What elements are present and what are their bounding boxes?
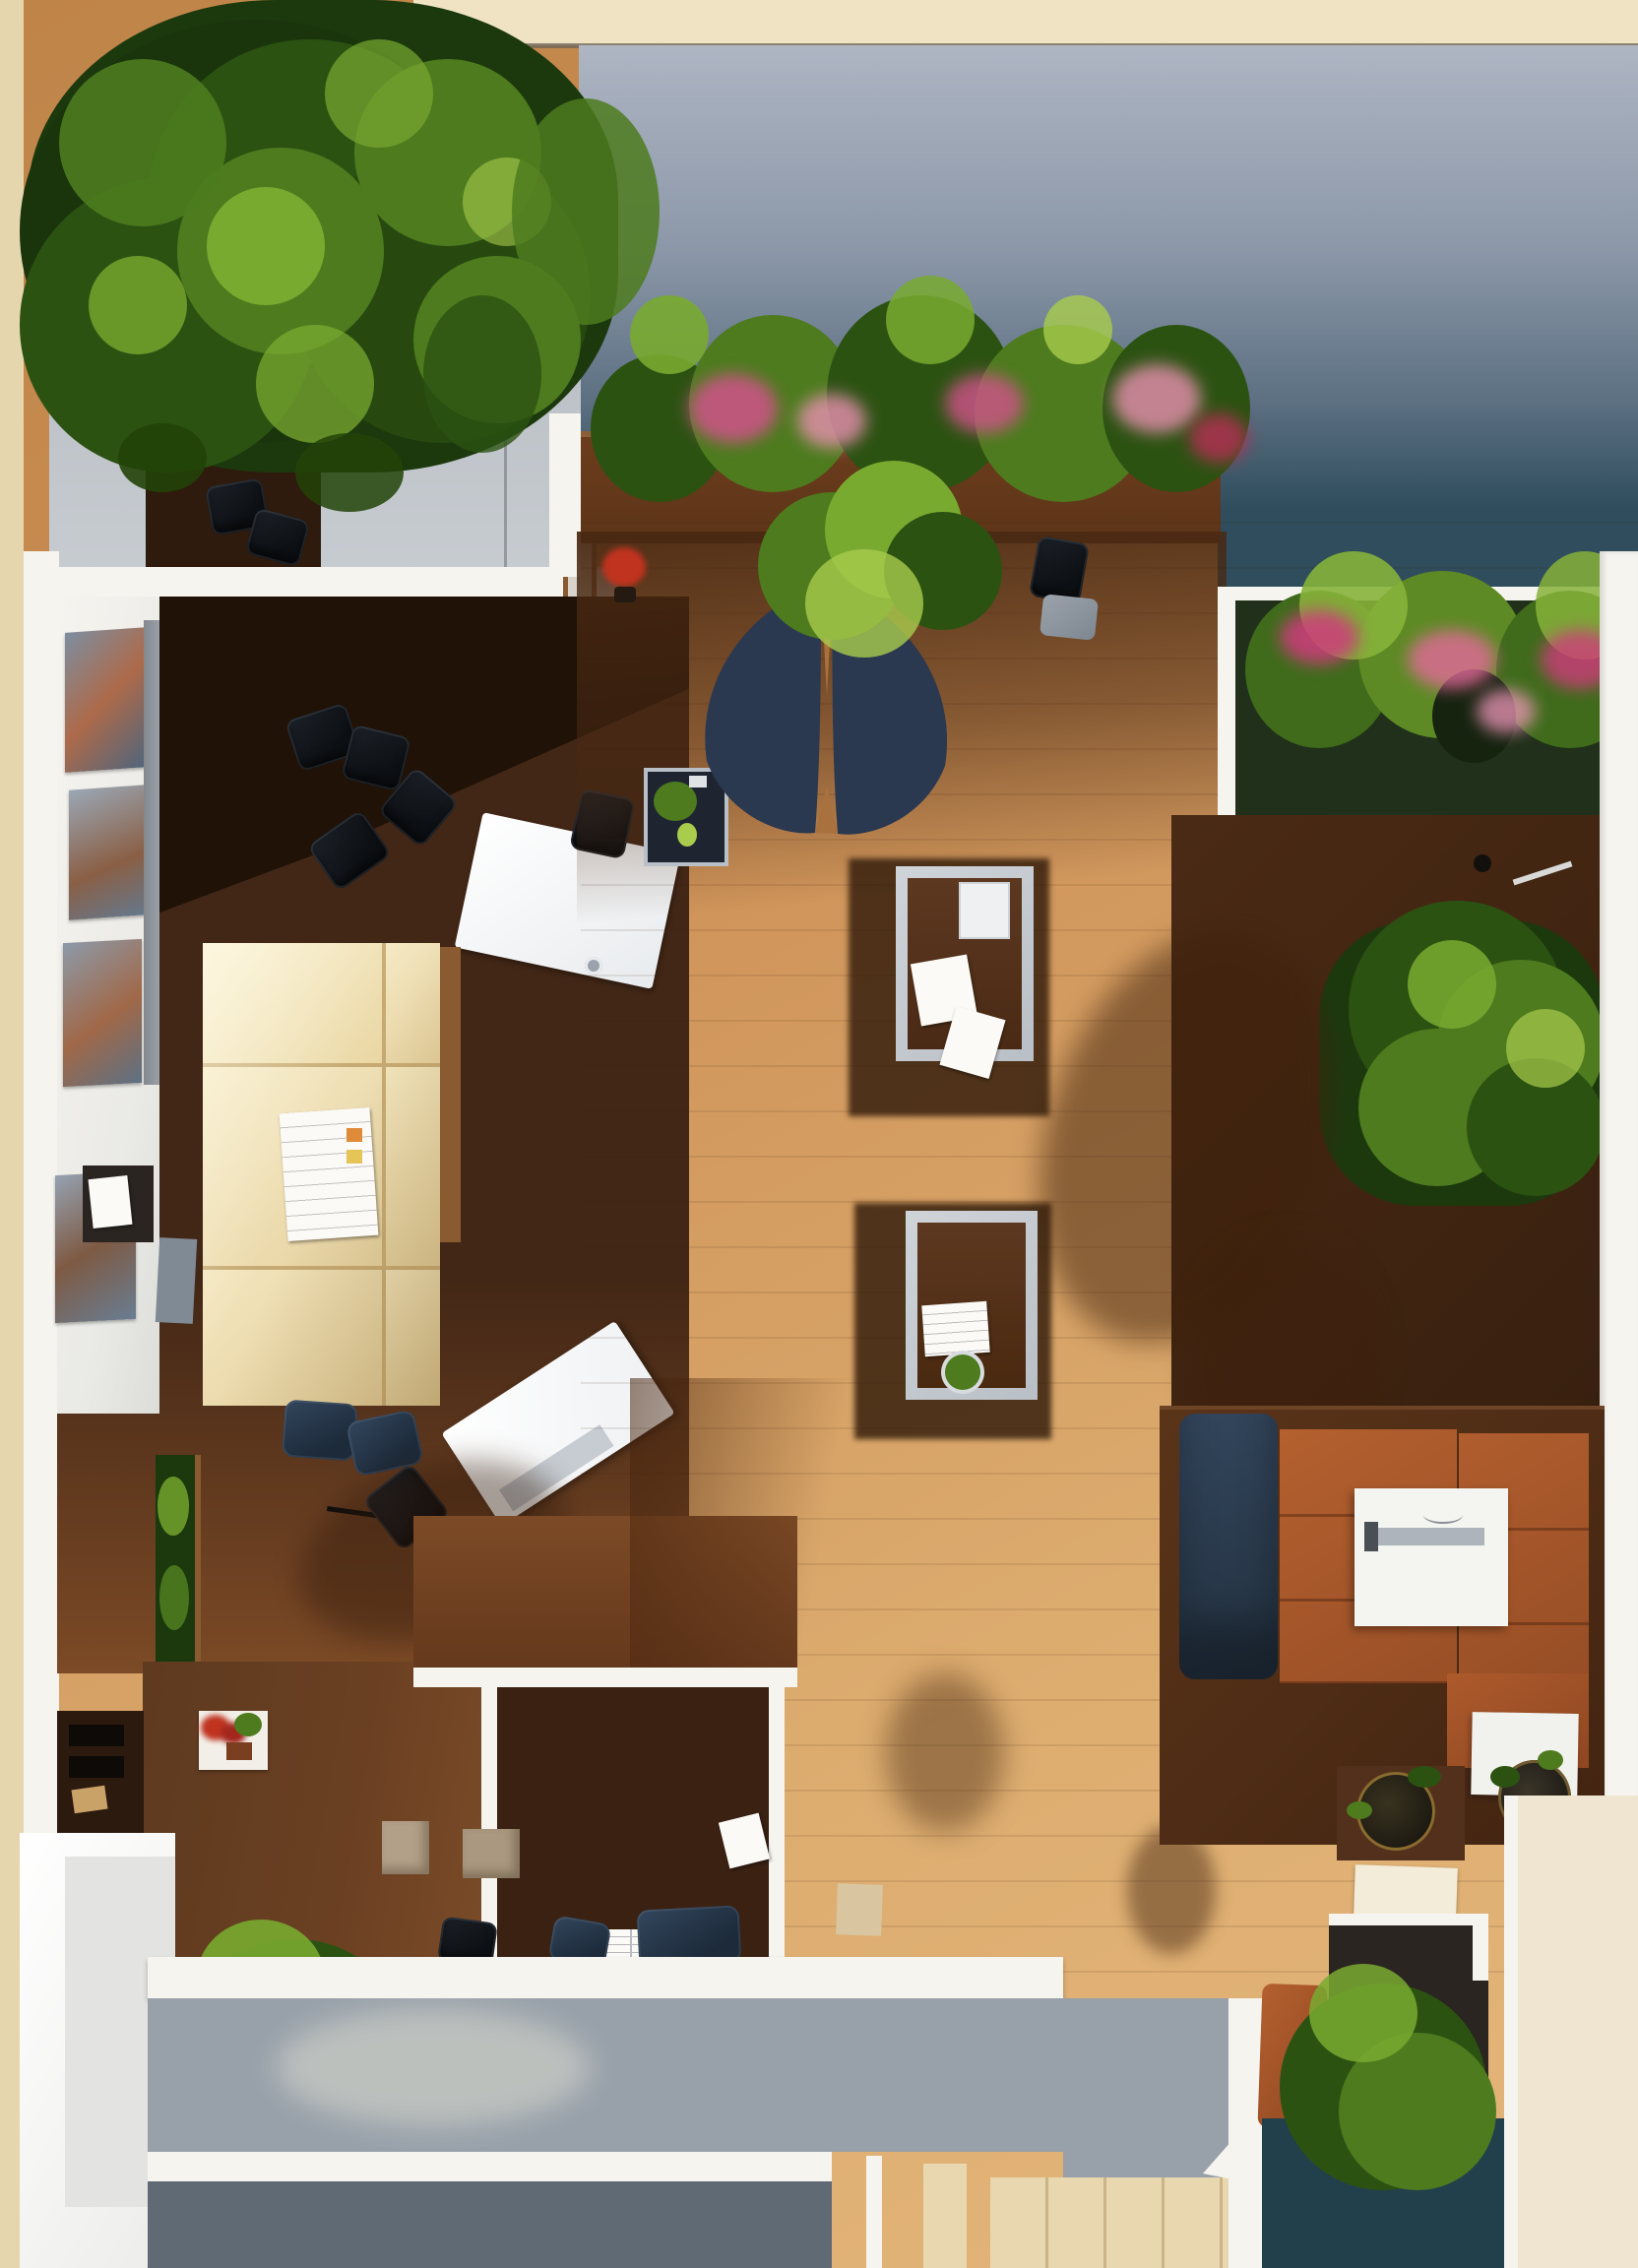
bar-dark-deck xyxy=(148,2181,832,2268)
flower-box xyxy=(199,1711,268,1770)
planter-flowers-magenta xyxy=(1408,630,1496,689)
shelving-unit xyxy=(57,1711,144,1837)
left-white-wall xyxy=(24,551,59,1979)
br-cream-box xyxy=(1354,1864,1458,1918)
hedge-flowers-pink xyxy=(797,394,866,448)
hedge-foliage-bright xyxy=(1043,295,1112,364)
tree-foliage-bright xyxy=(1408,940,1496,1029)
basket-leaf xyxy=(1347,1801,1372,1819)
beige-cabinet-front xyxy=(990,2177,1228,2268)
canopy-wisp xyxy=(118,423,207,492)
basket-leaf xyxy=(1538,1750,1563,1770)
flower-pot xyxy=(226,1742,252,1760)
hedge-flowers-pink xyxy=(689,374,778,443)
office-wall-right xyxy=(769,1683,785,1969)
table-white-box xyxy=(959,882,1010,939)
bar-gray-deck-right xyxy=(1063,1998,1228,2195)
flower-green xyxy=(234,1713,262,1736)
canopy-foliage-bright xyxy=(207,187,325,305)
basket-leaf xyxy=(1408,1766,1441,1788)
wall-art-frame xyxy=(65,627,148,773)
table-plant xyxy=(945,1354,980,1390)
hedge-flowers-crimson xyxy=(1189,413,1248,463)
planter-flowers-magenta xyxy=(1280,610,1358,664)
floor-shade-blend xyxy=(630,1378,945,1673)
bar-white-mid-band xyxy=(148,2152,832,2181)
sofa-document xyxy=(280,1107,379,1241)
navy-sofa-cushion xyxy=(1179,1414,1278,1679)
canopy-foliage-bright xyxy=(256,325,374,443)
white-divider xyxy=(866,2156,882,2268)
table-shelf xyxy=(1364,1528,1484,1545)
left-outer-wall-top xyxy=(28,567,618,600)
table-sketch xyxy=(1423,1506,1463,1524)
office-chair xyxy=(1029,535,1090,604)
taupe-stool xyxy=(382,1821,429,1874)
bar-white-top-band xyxy=(148,1957,1063,1998)
gray-step xyxy=(156,1237,197,1324)
tree-shadow xyxy=(1127,1826,1216,1954)
sticky-note-orange xyxy=(346,1128,362,1142)
shelf-slot xyxy=(69,1756,124,1778)
canopy-foliage xyxy=(59,59,226,226)
right-potted-tree xyxy=(1319,901,1614,1216)
taupe-stool xyxy=(463,1829,520,1878)
ceiling-lamp-dot xyxy=(1474,854,1491,872)
sticky-note-yellow xyxy=(346,1150,362,1164)
aerial-interior-rendering xyxy=(0,0,1638,2268)
tree-foliage-bright xyxy=(1506,1009,1585,1088)
right-white-wall xyxy=(1600,551,1638,1801)
hedge-flowers-pink xyxy=(945,374,1024,433)
canopy-wisp xyxy=(512,98,660,325)
large-tree-canopy xyxy=(0,0,669,532)
canopy-foliage-bright xyxy=(325,39,433,148)
red-flower-pot-bloom xyxy=(602,547,646,587)
shrub-foliage-bright xyxy=(1309,1964,1417,2062)
beige-panel xyxy=(923,2164,967,2268)
canopy-wisp xyxy=(423,295,541,453)
canopy-foliage-bright xyxy=(89,256,187,354)
wall-art-frame xyxy=(63,939,142,1087)
coffee-table-lower xyxy=(906,1211,1038,1400)
white-square-table xyxy=(1354,1488,1508,1626)
wall-art-frame xyxy=(69,785,146,919)
planter-foliage xyxy=(159,1565,189,1630)
shelf-slot xyxy=(69,1725,124,1746)
hedge-foliage-bright xyxy=(886,276,975,364)
canopy-wisp xyxy=(295,433,404,512)
shelf-item xyxy=(71,1786,107,1813)
tree-shadow xyxy=(886,1673,1004,1831)
cabinet-paper xyxy=(88,1175,132,1228)
gray-ottoman xyxy=(1039,594,1099,641)
deck-sheen xyxy=(276,2008,591,2126)
coffee-table-upper xyxy=(896,866,1034,1061)
red-flower-pot xyxy=(614,587,636,602)
basket-leaf xyxy=(1490,1766,1520,1788)
hedge-flowers-pink xyxy=(1112,364,1201,433)
wire-basket-plant xyxy=(1356,1772,1435,1851)
bottom-right-cream-wall xyxy=(1504,1795,1638,2268)
table-slot xyxy=(1364,1522,1378,1551)
planter-foliage xyxy=(157,1477,189,1536)
bottom-right-shrub xyxy=(1260,1954,1516,2239)
table-paper xyxy=(921,1301,989,1356)
office-wall-top xyxy=(413,1668,797,1687)
wall-pillar xyxy=(144,620,159,1085)
planter-flowers-magenta xyxy=(1477,689,1536,733)
wing-planter-shrub xyxy=(805,549,923,658)
beige-box xyxy=(836,1883,883,1936)
